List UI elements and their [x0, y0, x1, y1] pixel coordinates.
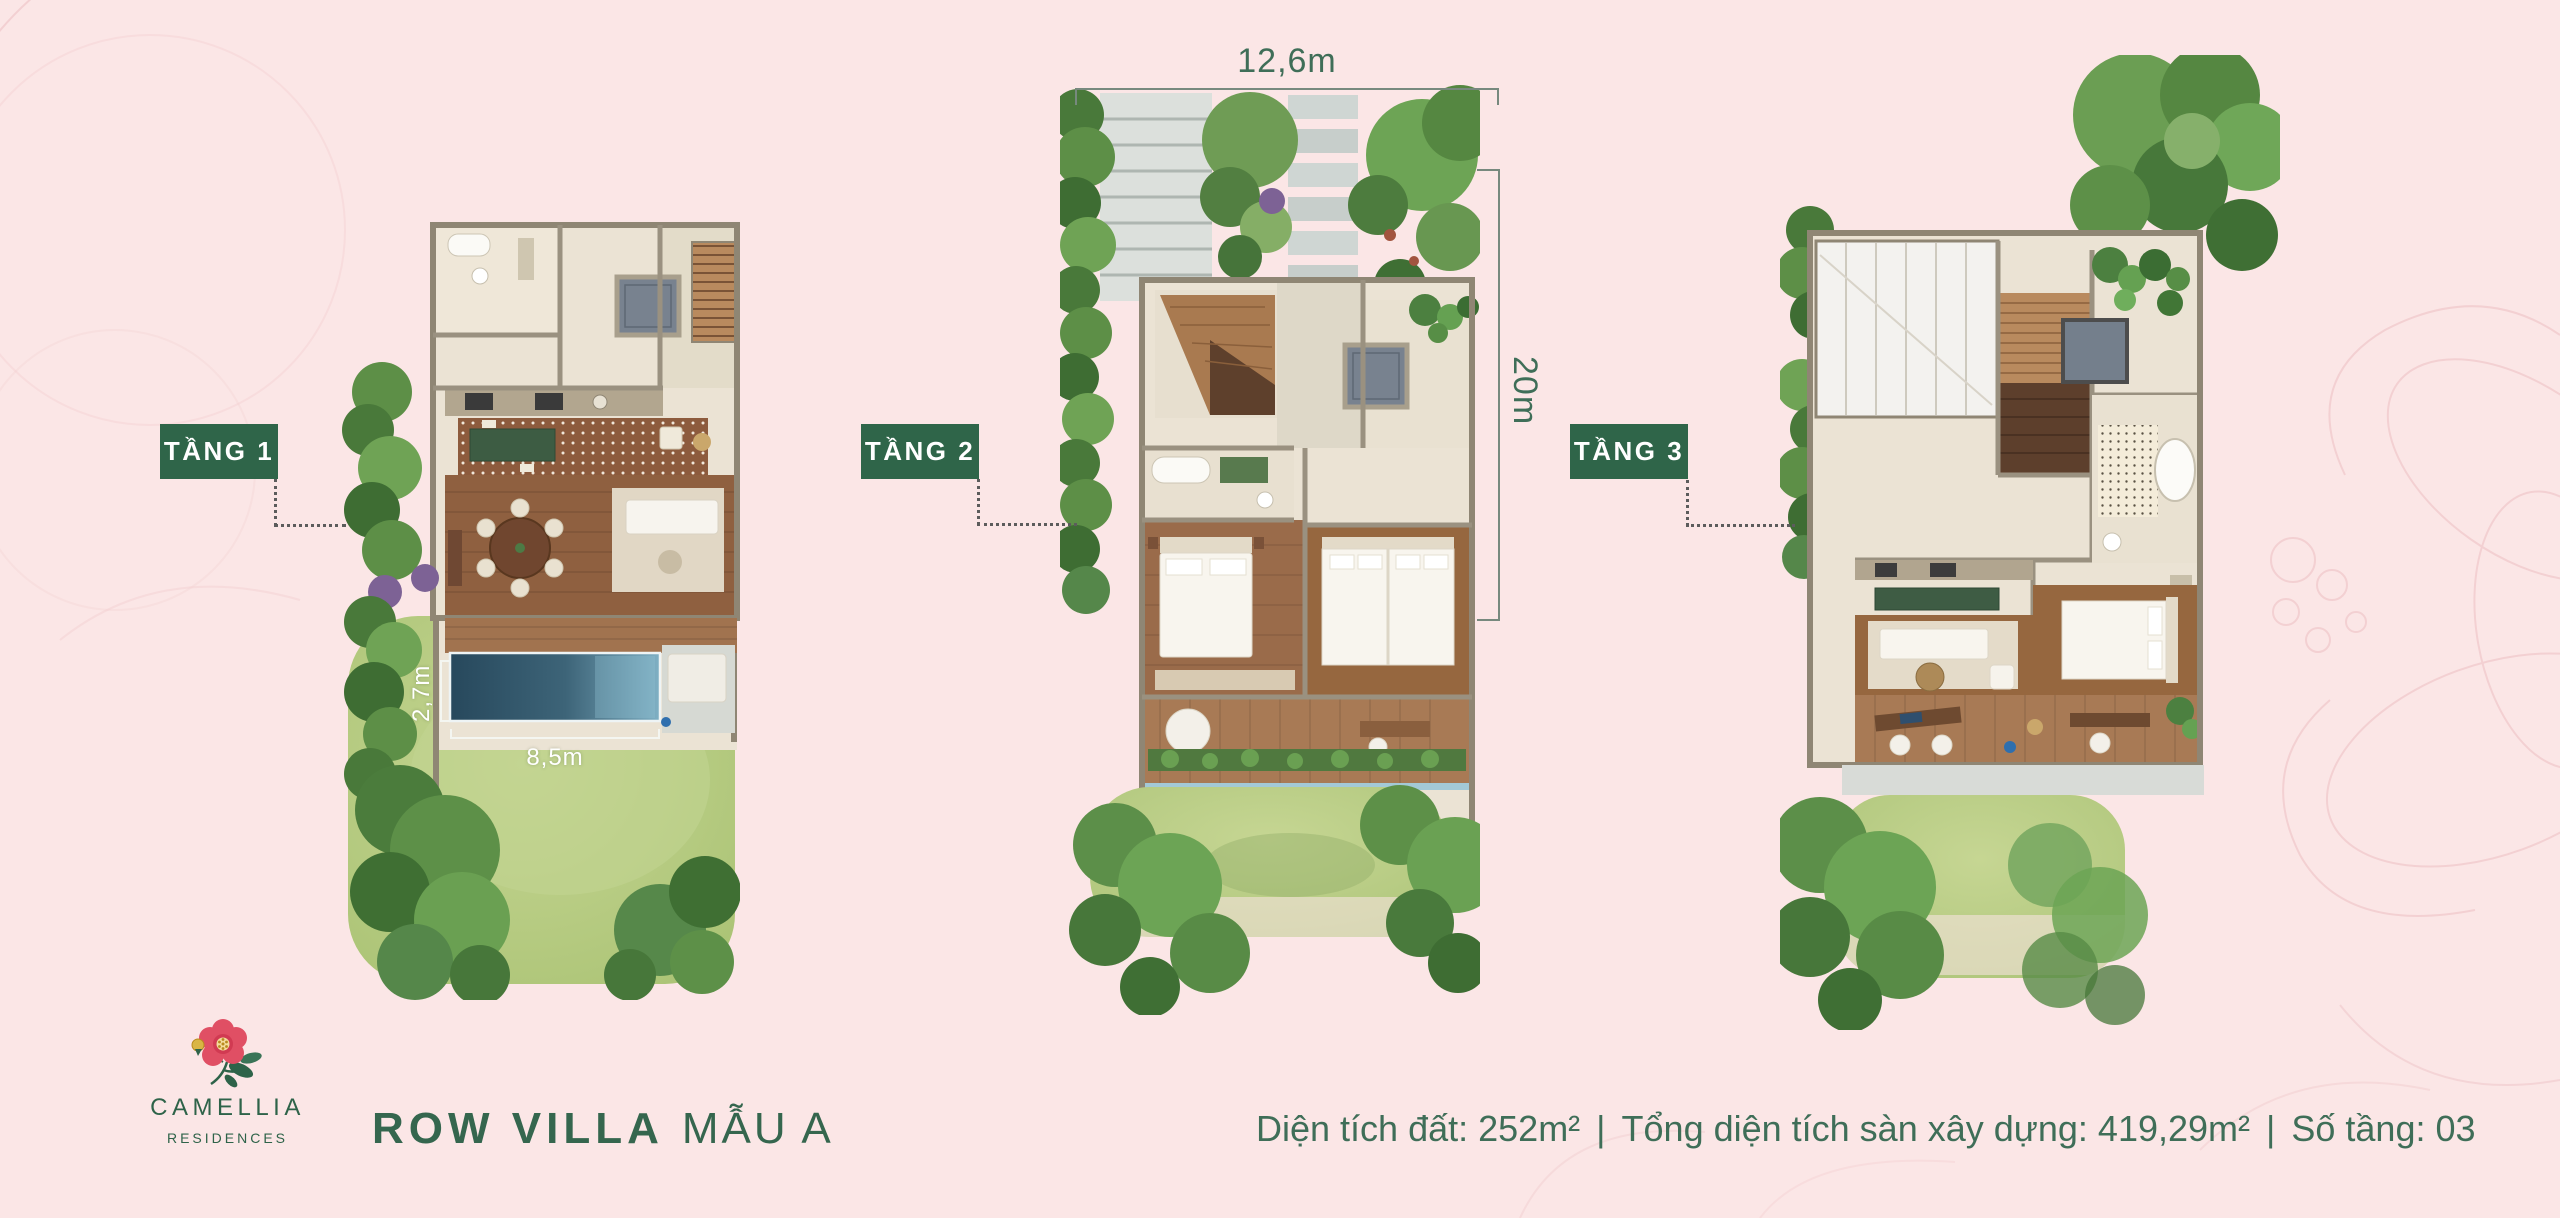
separator-2: | [2266, 1108, 2275, 1150]
floor-count-value: 03 [2435, 1108, 2475, 1150]
floor-1-plan [330, 130, 740, 1000]
floor-3-leader-horizontal [1686, 524, 1795, 527]
logo-name: CAMELLIA [135, 1094, 320, 1122]
floor-2-label: TẦNG 2 [861, 424, 979, 479]
pool-width-tick-bottom [440, 720, 450, 722]
lot-depth-dimension: 20m [1505, 356, 1544, 425]
floor-2-leader-vertical [977, 479, 980, 525]
pool-width-dimension: 2,7m [408, 665, 436, 722]
floor-1-leader-horizontal [274, 524, 346, 527]
lot-depth-line [1498, 169, 1500, 621]
pool-length-tick-right [658, 729, 660, 737]
pool-width-line [440, 660, 442, 722]
floor-2-leader-horizontal [977, 523, 1077, 526]
pool-width-tick-top [440, 660, 450, 662]
lot-width-dimension: 12,6m [1075, 42, 1499, 81]
floor-2-plan [1060, 85, 1480, 1015]
land-area-label: Diện tích đất: [1256, 1108, 1468, 1150]
pool-length-tick-left [450, 729, 452, 737]
floor-3-leader-vertical [1686, 480, 1689, 526]
lot-width-tick-left [1075, 88, 1077, 105]
lot-depth-tick-bottom [1477, 619, 1498, 621]
land-area-value: 252m² [1478, 1108, 1580, 1150]
separator-1: | [1596, 1108, 1605, 1150]
floor-3-label: TẦNG 3 [1570, 424, 1688, 479]
pool-length-dimension: 8,5m [450, 744, 660, 772]
page-title: ROW VILLAMẪU A [372, 1104, 834, 1154]
page-title-secondary: MẪU A [682, 1104, 834, 1153]
pool-length-line [450, 737, 660, 739]
floor-3-plan [1780, 55, 2280, 1030]
camellia-flower-logo-icon [183, 1018, 271, 1090]
page-title-primary: ROW VILLA [372, 1104, 664, 1153]
brochure-page: { "floor_labels": [ {"label": "TẦNG 1"},… [0, 0, 2560, 1218]
lot-depth-tick-top [1477, 169, 1498, 171]
floor-1-leader-vertical [274, 479, 277, 526]
built-area-value: 419,29m² [2098, 1108, 2250, 1150]
lot-width-tick-right [1497, 88, 1499, 105]
specs-line: Diện tích đất: 252m² | Tổng diện tích sà… [1256, 1108, 2476, 1150]
floor-1-label: TẦNG 1 [160, 424, 278, 479]
lot-width-line [1075, 88, 1499, 90]
logo-subtitle: RESIDENCES [135, 1130, 320, 1146]
floor-count-label: Số tầng: [2291, 1108, 2425, 1150]
built-area-label: Tổng diện tích sàn xây dựng: [1622, 1108, 2088, 1150]
